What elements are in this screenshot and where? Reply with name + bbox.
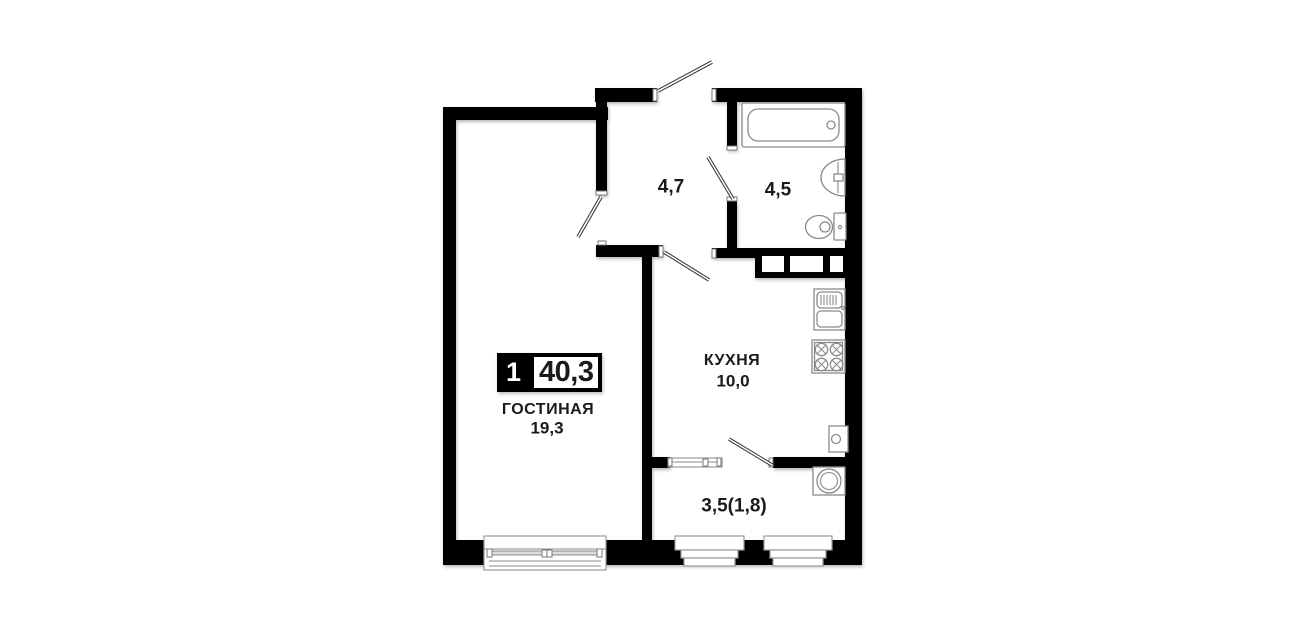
unit-badge: 1 40,3: [497, 353, 602, 392]
hallway-bottom-wall: [596, 245, 663, 257]
bathroom-divider-lower: [727, 201, 737, 248]
living-room-window: [484, 536, 606, 570]
kitchen-door: [664, 252, 709, 280]
living-top-wall: [443, 107, 608, 120]
bathroom-divider-upper: [727, 102, 737, 150]
vent-shaft: [755, 248, 845, 278]
boiler-icon: [829, 426, 848, 452]
floorplan-canvas: 1 40,3 ГОСТИНАЯ 19,3 КУХНЯ 10,0 4,7 4,5 …: [0, 0, 1301, 630]
living-kitchen-divider: [642, 257, 652, 540]
living-room-door: [578, 197, 601, 237]
hallway-area: 4,7: [658, 178, 684, 197]
living-room-area: 19,3: [530, 420, 563, 437]
right-wall: [845, 88, 862, 565]
washing-machine-icon: [813, 467, 845, 495]
living-room-label: ГОСТИНАЯ: [502, 402, 594, 418]
bathroom-sink-icon: [821, 159, 845, 196]
rooms-count: 1: [497, 353, 530, 392]
bathtub-icon: [742, 103, 845, 147]
kitchen-area: 10,0: [716, 373, 749, 390]
bathroom-area: 4,5: [765, 181, 791, 200]
bathroom-top-wall: [712, 88, 862, 102]
toilet-icon: [806, 213, 847, 240]
total-area-value: 40,3: [530, 353, 602, 392]
walls: [443, 88, 862, 565]
balcony-door: [729, 439, 772, 465]
left-wall: [443, 107, 456, 565]
floorplan-drawing: [0, 0, 1301, 630]
balcony-window-2: [764, 536, 832, 566]
kitchen-label: КУХНЯ: [704, 353, 760, 369]
living-hallway-divider: [596, 88, 607, 195]
balcony-wall-left: [642, 457, 670, 468]
bathroom-door: [708, 157, 733, 199]
entrance-door: [658, 62, 712, 91]
balcony-area: 3,5(1,8): [701, 497, 766, 516]
kitchen-top-wall: [712, 248, 760, 258]
stove-icon: [812, 340, 845, 373]
balcony-glazing: [668, 458, 722, 467]
balcony-window-1: [675, 536, 744, 566]
kitchen-sink-icon: [814, 289, 845, 330]
